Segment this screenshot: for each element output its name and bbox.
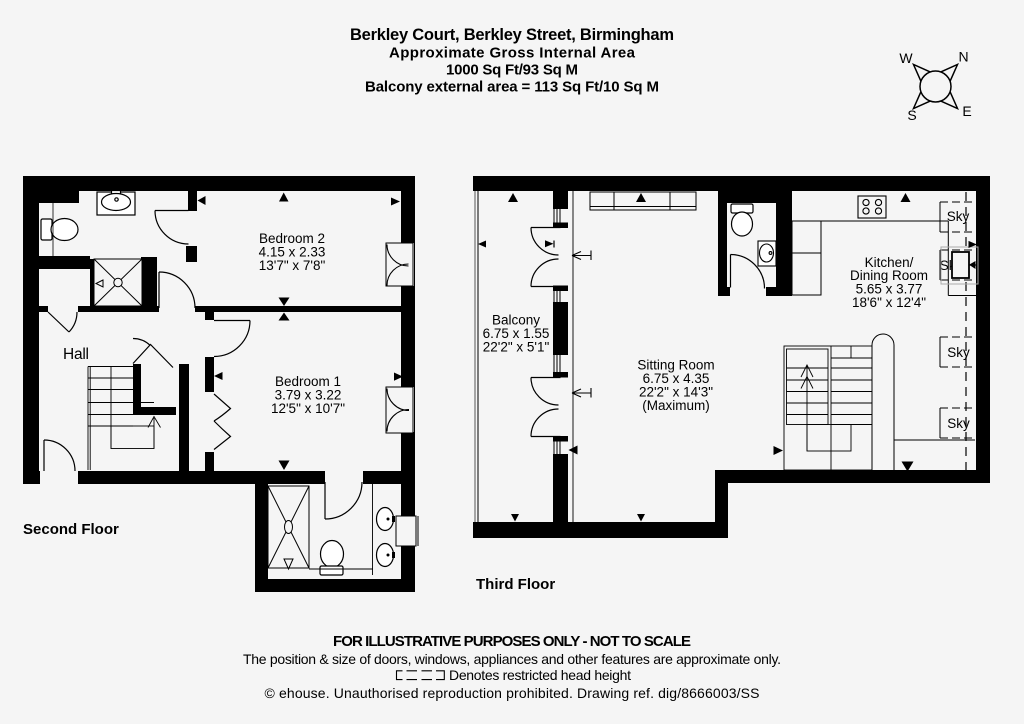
svg-text:Second Floor: Second Floor (23, 521, 119, 538)
svg-text:Berkley Court, Berkley Street,: Berkley Court, Berkley Street, Birmingha… (350, 26, 674, 44)
svg-text:Third Floor: Third Floor (476, 576, 555, 593)
svg-text:E: E (962, 103, 971, 119)
svg-text:Sky: Sky (947, 345, 970, 360)
svg-text:Approximate Gross Internal Are: Approximate Gross Internal Area (389, 45, 636, 62)
svg-text:Balcony external area = 113 Sq: Balcony external area = 113 Sq Ft/10 Sq … (365, 79, 659, 96)
svg-text:S: S (907, 107, 916, 123)
svg-text:© ehouse. Unauthorised reprodu: © ehouse. Unauthorised reproduction proh… (265, 685, 760, 701)
svg-text:Sky: Sky (947, 416, 970, 431)
svg-text:(Maximum): (Maximum) (642, 398, 710, 413)
svg-text:Denotes restricted head height: Denotes restricted head height (449, 667, 631, 683)
svg-text:22'2" x 5'1": 22'2" x 5'1" (483, 340, 550, 355)
svg-text:N: N (958, 49, 968, 65)
svg-text:W: W (899, 50, 913, 66)
svg-text:13'7" x 7'8": 13'7" x 7'8" (259, 258, 326, 273)
svg-text:Hall: Hall (63, 346, 89, 363)
svg-text:1000 Sq Ft/93 Sq M: 1000 Sq Ft/93 Sq M (446, 62, 578, 79)
svg-text:The position & size of doors,: The position & size of doors, windows, a… (243, 651, 781, 667)
svg-text:FOR ILLUSTRATIVE PURPOSES ONLY: FOR ILLUSTRATIVE PURPOSES ONLY - NOT TO … (333, 633, 691, 650)
svg-text:12'5" x 10'7": 12'5" x 10'7" (271, 401, 345, 416)
svg-text:Sky: Sky (947, 209, 970, 224)
svg-text:18'6" x 12'4": 18'6" x 12'4" (852, 295, 926, 310)
